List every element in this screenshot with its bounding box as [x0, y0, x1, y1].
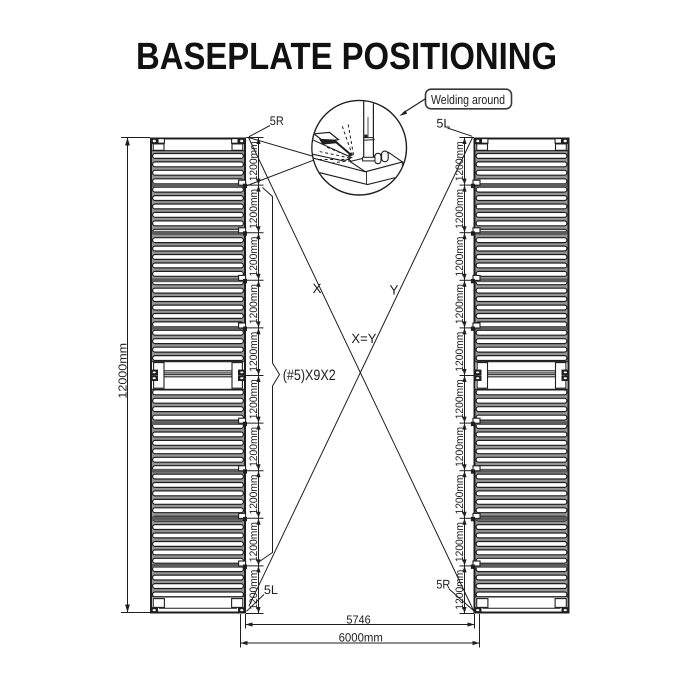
svg-text:1200mm: 1200mm — [248, 427, 260, 467]
svg-text:1200mm: 1200mm — [454, 522, 466, 562]
svg-text:(#5)X9X2: (#5)X9X2 — [283, 367, 336, 384]
svg-text:X=Y: X=Y — [351, 331, 376, 346]
svg-text:5746: 5746 — [346, 613, 370, 626]
svg-text:1200mm: 1200mm — [454, 237, 466, 277]
svg-text:X: X — [313, 281, 322, 296]
svg-text:1200mm: 1200mm — [454, 570, 466, 610]
svg-text:6000mm: 6000mm — [339, 630, 383, 644]
svg-text:1200mm: 1200mm — [454, 379, 466, 419]
svg-text:Y: Y — [390, 283, 399, 298]
svg-text:1200mm: 1200mm — [248, 237, 260, 277]
svg-text:BASEPLATE POSITIONING: BASEPLATE POSITIONING — [136, 36, 557, 78]
svg-text:1200mm: 1200mm — [454, 475, 466, 515]
svg-text:1200mm: 1200mm — [248, 141, 260, 181]
svg-text:1200mm: 1200mm — [454, 332, 466, 372]
svg-text:1200mm: 1200mm — [248, 189, 260, 229]
svg-text:1200mm: 1200mm — [454, 189, 466, 229]
svg-text:1200mm: 1200mm — [248, 284, 260, 324]
svg-text:1200mm: 1200mm — [454, 427, 466, 467]
svg-text:5R: 5R — [436, 578, 450, 592]
svg-text:1200mm: 1200mm — [454, 284, 466, 324]
svg-text:Welding around: Welding around — [431, 92, 505, 107]
svg-text:5L: 5L — [436, 116, 450, 130]
svg-text:5L: 5L — [264, 583, 278, 597]
svg-text:1200mm: 1200mm — [248, 522, 260, 562]
svg-text:5R: 5R — [270, 114, 284, 128]
svg-text:1200mm: 1200mm — [248, 332, 260, 372]
svg-text:12000mm: 12000mm — [116, 343, 129, 399]
svg-text:1200mm: 1200mm — [248, 475, 260, 515]
svg-text:1200mm: 1200mm — [454, 141, 466, 181]
svg-text:1200mm: 1200mm — [248, 379, 260, 419]
